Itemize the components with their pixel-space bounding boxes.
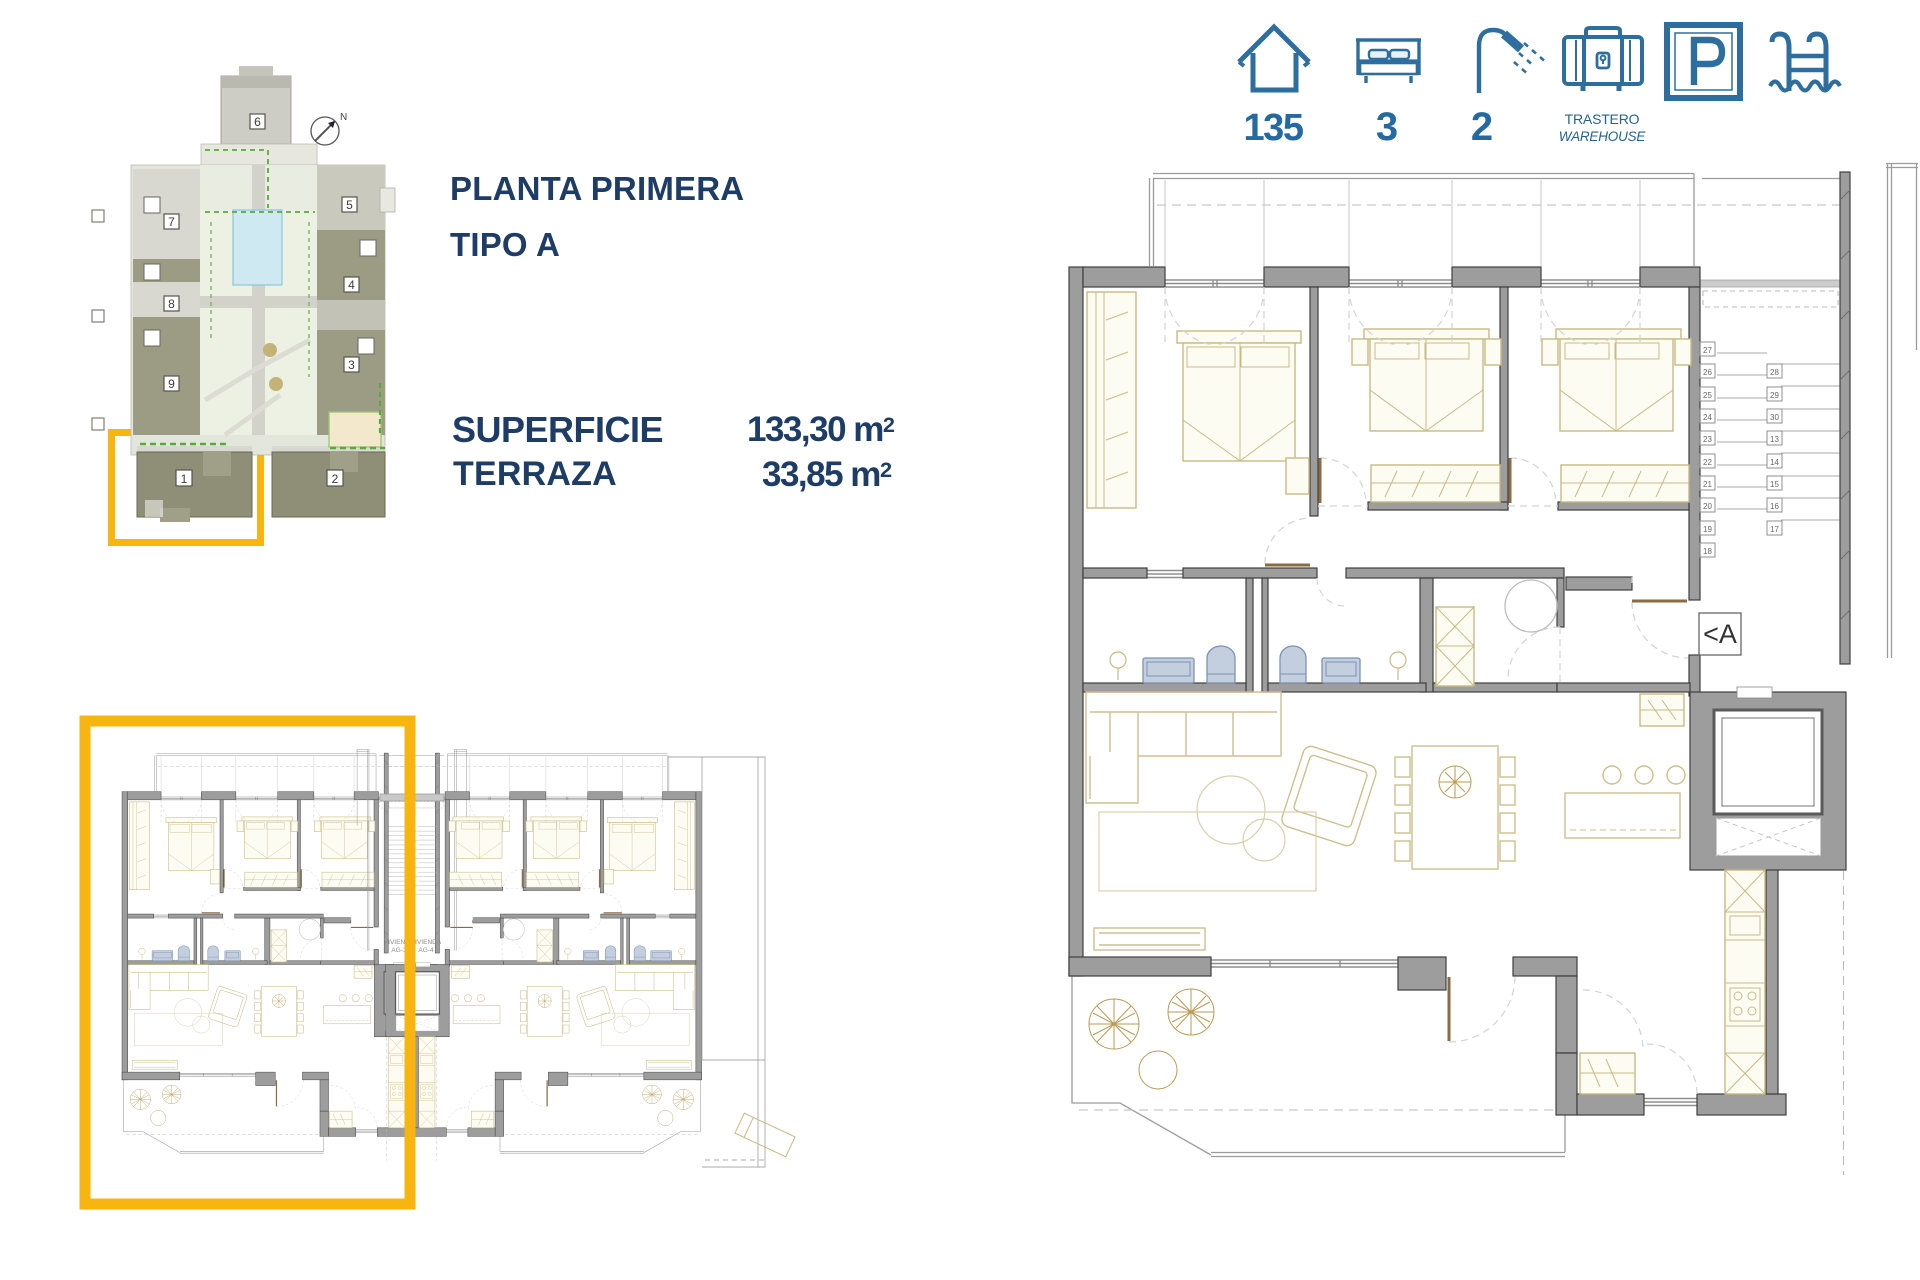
svg-text:TRASTERO: TRASTERO — [1565, 111, 1640, 127]
svg-text:9: 9 — [168, 377, 175, 391]
svg-text:<A: <A — [1703, 619, 1737, 649]
svg-text:15: 15 — [1770, 480, 1779, 489]
svg-text:26: 26 — [1703, 368, 1712, 377]
svg-text:16: 16 — [1770, 502, 1779, 511]
svg-text:30: 30 — [1770, 413, 1779, 422]
svg-text:21: 21 — [1703, 480, 1712, 489]
svg-text:4: 4 — [348, 278, 355, 292]
svg-text:14: 14 — [1770, 458, 1779, 467]
svg-text:3: 3 — [348, 358, 355, 372]
svg-text:8: 8 — [168, 297, 175, 311]
svg-text:AG-4: AG-4 — [418, 947, 434, 954]
svg-text:18: 18 — [1703, 547, 1712, 556]
svg-text:13: 13 — [1770, 435, 1779, 444]
svg-text:27: 27 — [1703, 346, 1712, 355]
svg-text:22: 22 — [1703, 458, 1712, 467]
svg-text:17: 17 — [1770, 525, 1779, 534]
svg-text:28: 28 — [1770, 368, 1779, 377]
svg-text:135: 135 — [1244, 107, 1304, 149]
svg-text:25: 25 — [1703, 391, 1712, 400]
svg-text:6: 6 — [254, 115, 261, 129]
svg-text:3: 3 — [1376, 105, 1398, 149]
svg-text:WAREHOUSE: WAREHOUSE — [1559, 129, 1647, 144]
svg-text:1: 1 — [181, 472, 188, 486]
svg-text:2: 2 — [1471, 105, 1493, 149]
svg-text:24: 24 — [1703, 413, 1712, 422]
svg-text:5: 5 — [346, 198, 353, 212]
svg-text:2: 2 — [332, 472, 339, 486]
svg-text:N: N — [340, 112, 347, 123]
svg-text:19: 19 — [1703, 525, 1712, 534]
svg-text:7: 7 — [168, 215, 175, 229]
svg-text:29: 29 — [1770, 391, 1779, 400]
svg-text:23: 23 — [1703, 435, 1712, 444]
svg-text:20: 20 — [1703, 502, 1712, 511]
